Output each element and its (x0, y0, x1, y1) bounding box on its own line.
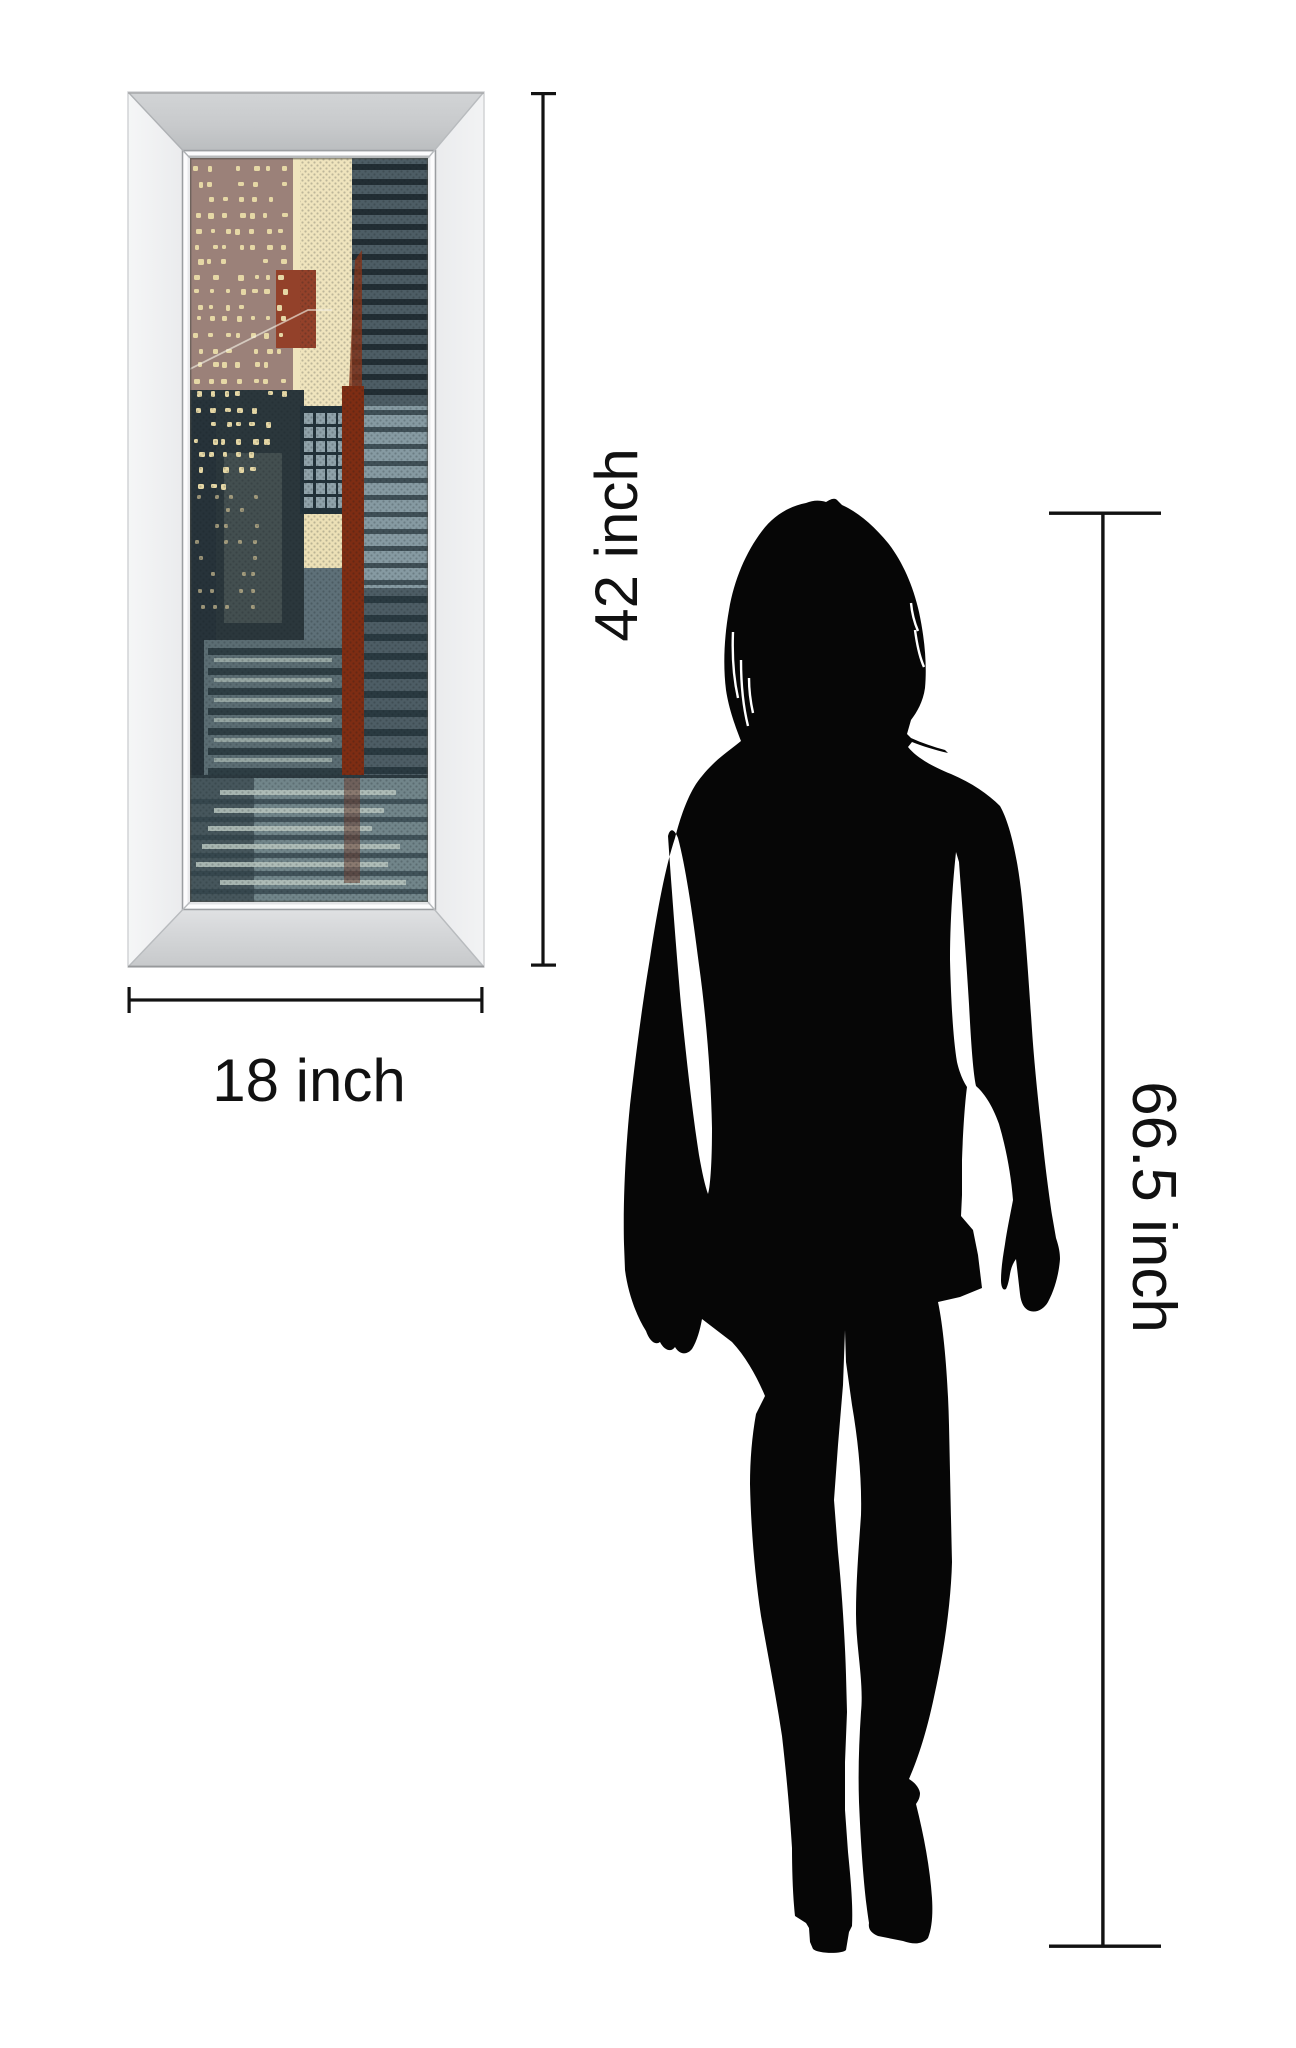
svg-text:18 inch: 18 inch (212, 1047, 405, 1114)
svg-text:66.5 inch: 66.5 inch (1119, 1081, 1188, 1333)
svg-text:42 inch: 42 inch (583, 448, 650, 641)
